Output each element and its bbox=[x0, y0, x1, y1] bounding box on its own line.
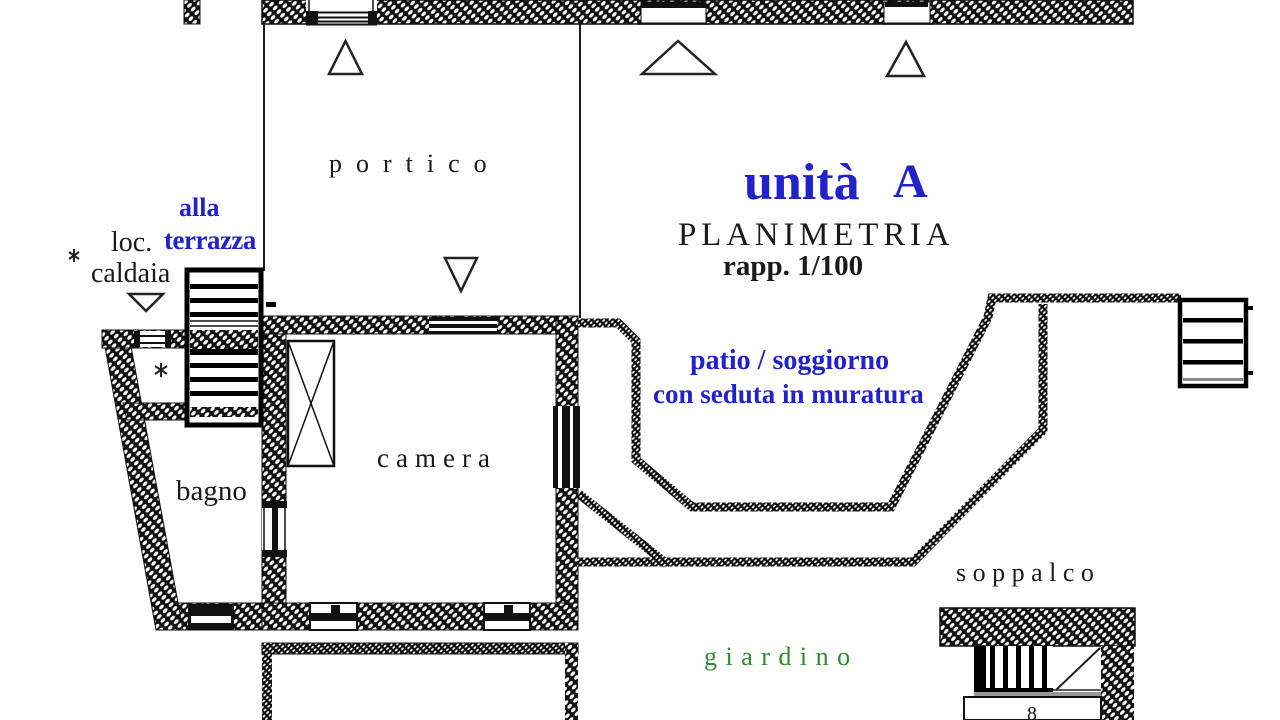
svg-text:portico: portico bbox=[329, 149, 501, 178]
svg-text:giardino: giardino bbox=[704, 642, 859, 671]
svg-text:PLANIMETRIA: PLANIMETRIA bbox=[678, 217, 954, 253]
svg-text:loc.: loc. bbox=[111, 227, 152, 258]
svg-text:con seduta in muratura: con seduta in muratura bbox=[653, 379, 924, 409]
svg-text:A: A bbox=[893, 155, 928, 208]
svg-text:8: 8 bbox=[1027, 703, 1037, 720]
svg-text:rapp. 1/100: rapp. 1/100 bbox=[723, 250, 863, 282]
svg-text:alla: alla bbox=[179, 193, 219, 222]
svg-text:terrazza: terrazza bbox=[164, 225, 257, 255]
svg-text:camera: camera bbox=[377, 443, 497, 473]
svg-text:patio / soggiorno: patio / soggiorno bbox=[690, 345, 889, 376]
svg-text:caldaia: caldaia bbox=[91, 258, 171, 289]
svg-text:soppalco: soppalco bbox=[956, 558, 1100, 587]
svg-text:unità: unità bbox=[744, 154, 860, 211]
svg-text:bagno: bagno bbox=[176, 475, 247, 507]
